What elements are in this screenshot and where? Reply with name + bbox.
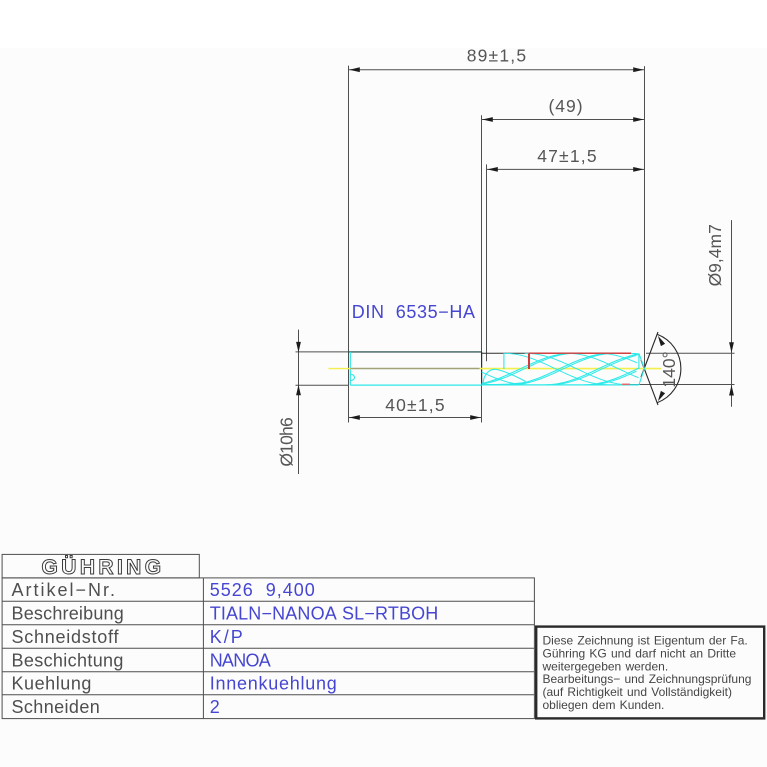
svg-text:DIN 6535−HA: DIN 6535−HA — [352, 302, 476, 322]
svg-text:Beschreibung: Beschreibung — [12, 603, 124, 623]
svg-text:Ø10h6: Ø10h6 — [277, 418, 297, 467]
svg-text:Schneiden: Schneiden — [12, 697, 101, 717]
svg-text:Artikel−Nr.: Artikel−Nr. — [12, 580, 118, 600]
svg-text:89±1,5: 89±1,5 — [467, 46, 528, 66]
svg-text:(auf Richtigkeit und Vollständ: (auf Richtigkeit und Vollständigkeit) — [543, 685, 732, 699]
svg-text:(49): (49) — [548, 96, 583, 116]
svg-text:140°: 140° — [659, 351, 679, 387]
svg-text:GÜHRING: GÜHRING — [42, 556, 165, 579]
svg-text:Innenkuehlung: Innenkuehlung — [210, 674, 338, 694]
svg-text:obliegen dem Kunden.: obliegen dem Kunden. — [543, 698, 665, 712]
svg-text:Diese Zeichnung ist Eigentum d: Diese Zeichnung ist Eigentum der Fa. — [543, 634, 748, 648]
svg-text:weitergegeben werden.: weitergegeben werden. — [542, 659, 669, 673]
svg-text:Kuehlung: Kuehlung — [12, 674, 92, 694]
svg-text:K/P: K/P — [210, 627, 245, 647]
svg-text:2: 2 — [210, 697, 220, 717]
svg-text:NANOA: NANOA — [210, 650, 271, 670]
svg-text:5526 9,400: 5526 9,400 — [210, 580, 316, 600]
svg-text:Schneidstoff: Schneidstoff — [12, 627, 120, 647]
svg-text:40±1,5: 40±1,5 — [385, 395, 446, 415]
svg-text:Ø9,4m7: Ø9,4m7 — [705, 224, 725, 286]
svg-text:TIALN−NANOA SL−RTBOH: TIALN−NANOA SL−RTBOH — [210, 603, 439, 623]
svg-text:Gühring KG und darf nicht an D: Gühring KG und darf nicht an Dritte — [543, 646, 737, 660]
svg-text:Beschichtung: Beschichtung — [12, 650, 124, 670]
svg-text:Bearbeitungs− und Zeichnungspr: Bearbeitungs− und Zeichnungsprüfung — [543, 672, 752, 686]
svg-text:47±1,5: 47±1,5 — [537, 146, 598, 166]
